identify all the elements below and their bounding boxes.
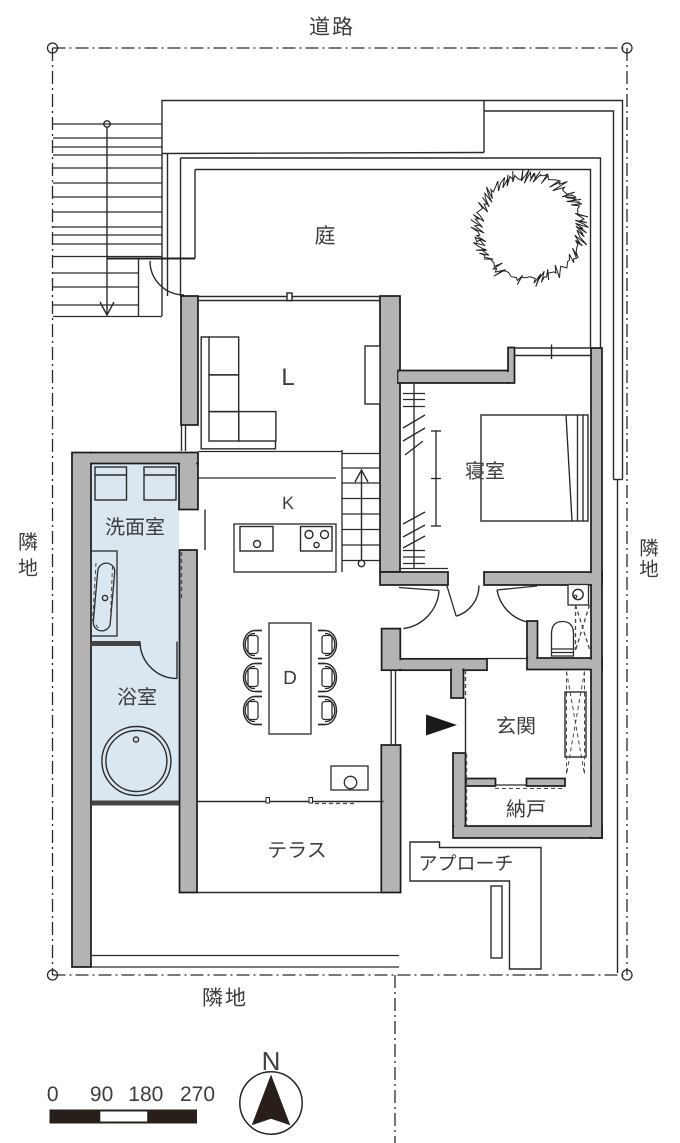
- svg-text:0: 0: [47, 1083, 59, 1106]
- svg-text:庭: 庭: [315, 225, 336, 248]
- svg-text:K: K: [282, 493, 294, 513]
- svg-text:隣地: 隣地: [202, 987, 248, 1010]
- svg-text:180: 180: [128, 1083, 163, 1106]
- svg-text:隣: 隣: [18, 532, 38, 554]
- svg-text:270: 270: [180, 1083, 215, 1106]
- svg-text:浴室: 浴室: [117, 687, 157, 709]
- svg-text:地: 地: [639, 559, 659, 581]
- svg-text:アプローチ: アプローチ: [418, 854, 513, 875]
- svg-text:寝室: 寝室: [465, 460, 505, 483]
- svg-text:90: 90: [90, 1083, 113, 1106]
- svg-text:L: L: [281, 364, 294, 391]
- svg-text:N: N: [262, 1046, 281, 1076]
- svg-text:地: 地: [18, 558, 38, 580]
- svg-text:玄関: 玄関: [496, 716, 536, 738]
- svg-text:D: D: [283, 668, 297, 689]
- svg-text:テラス: テラス: [267, 840, 327, 862]
- svg-text:隣: 隣: [639, 538, 659, 560]
- svg-text:道路: 道路: [309, 16, 355, 39]
- svg-text:納戸: 納戸: [506, 799, 546, 821]
- svg-text:洗面室: 洗面室: [105, 517, 165, 539]
